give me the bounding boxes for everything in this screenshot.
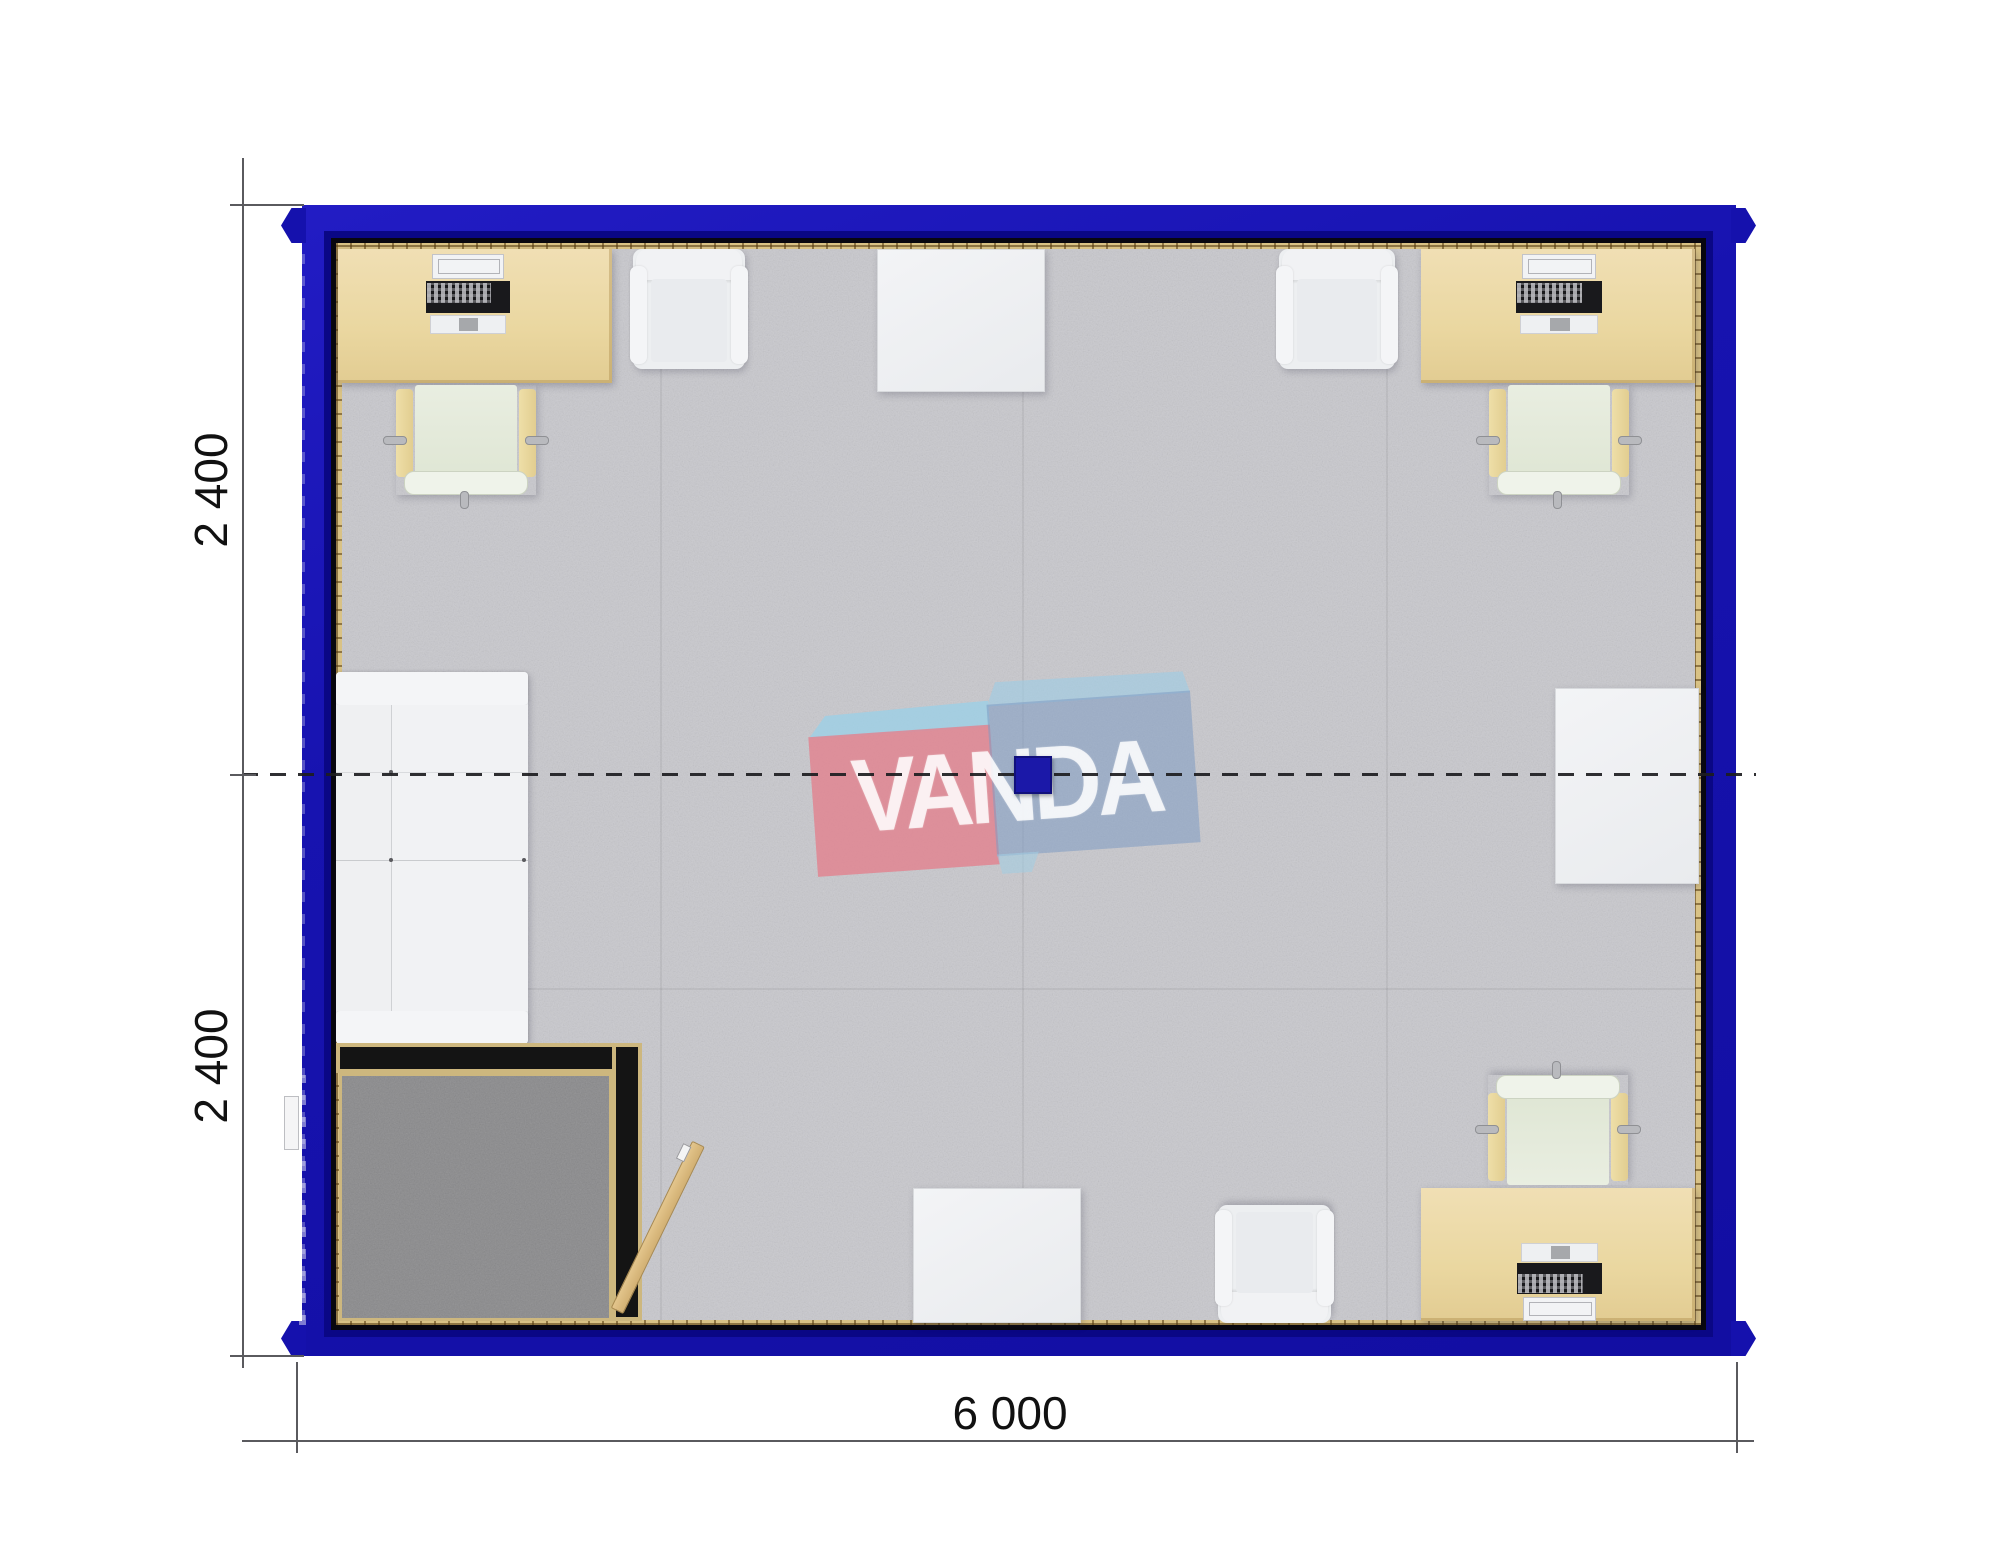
- carpet-seam: [342, 988, 1695, 990]
- chair-caster: [1618, 436, 1642, 445]
- armchair-seat: [1297, 279, 1377, 362]
- corner-casting: [281, 208, 306, 243]
- table-top-center: [877, 249, 1045, 392]
- dimension-tick: [230, 1355, 304, 1357]
- office-chair-top-left: [396, 385, 536, 495]
- laptop-keyboard: [426, 281, 510, 313]
- dimension-tick: [1736, 1429, 1738, 1453]
- armchair-bottom: [1218, 1205, 1331, 1323]
- armchair-backrest: [636, 249, 741, 280]
- dimension-tick: [230, 204, 304, 206]
- carpet-seam: [1386, 249, 1388, 1320]
- chair-seat: [1507, 1092, 1609, 1186]
- vanda-watermark: VANDA: [794, 672, 1207, 894]
- laptop-keyboard: [1516, 281, 1602, 313]
- sofa-backrest: [336, 705, 392, 1011]
- table-bottom-center: [913, 1188, 1081, 1323]
- laptop-touchpad: [459, 318, 478, 331]
- corner-casting: [281, 1321, 306, 1356]
- dimension-label-width: 6 000: [900, 1388, 1120, 1438]
- laptop-lid: [432, 254, 504, 279]
- dimension-line-bottom: [242, 1440, 1754, 1442]
- floor-plan-canvas: VANDA: [0, 0, 2000, 1561]
- laptop-touchpad: [1550, 318, 1570, 331]
- vestibule-floor: [339, 1073, 612, 1321]
- armchair-seat: [651, 279, 727, 362]
- laptop-top-right: [1516, 254, 1602, 334]
- vestibule-wall-top: [336, 1043, 642, 1073]
- laptop-palmrest: [1521, 1243, 1598, 1262]
- corner-casting: [1731, 208, 1756, 243]
- entry-door-dashes: [299, 1075, 306, 1325]
- office-chair-top-right: [1489, 385, 1629, 495]
- chair-caster: [1475, 1125, 1499, 1134]
- chair-caster: [1617, 1125, 1641, 1134]
- dimension-line-left: [242, 158, 244, 1368]
- laptop-top-left: [426, 254, 510, 334]
- laptop-keyboard: [1517, 1263, 1602, 1294]
- corner-casting: [1731, 1321, 1756, 1356]
- office-chair-bottom-right: [1488, 1075, 1628, 1185]
- sofa-seats: [392, 705, 528, 1011]
- laptop-touchpad: [1551, 1246, 1570, 1258]
- chair-caster: [1476, 436, 1500, 445]
- chair-seat: [415, 385, 517, 479]
- armchair-backrest: [1221, 1292, 1327, 1323]
- armchair-seat: [1236, 1212, 1313, 1293]
- dimension-tick: [230, 774, 256, 776]
- dimension-tick: [296, 1429, 298, 1453]
- vestibule-carpet-noise: [342, 1076, 609, 1318]
- chair-caster: [383, 436, 407, 445]
- chair-caster: [525, 436, 549, 445]
- armchair-top-left: [633, 249, 745, 369]
- laptop-bottom-right: [1517, 1243, 1602, 1321]
- sofa-armrest-bottom: [336, 1011, 528, 1044]
- chair-caster: [460, 491, 469, 509]
- sofa: [336, 672, 528, 1044]
- sofa-armrest-top: [336, 672, 528, 705]
- chair-caster: [1553, 491, 1562, 509]
- logo-text: VANDA: [848, 717, 1164, 857]
- module-centerline: [242, 773, 1756, 776]
- table-right-wall: [1555, 688, 1699, 884]
- armchair-backrest: [1282, 249, 1391, 280]
- carpet-seam: [660, 249, 662, 1320]
- exterior-door-step: [284, 1096, 299, 1150]
- center-floor-box: [1014, 756, 1052, 794]
- dimension-label-module-bottom: 2 400: [186, 996, 236, 1136]
- logo-blue-tab: [997, 851, 1040, 874]
- laptop-palmrest: [1520, 315, 1597, 334]
- dimension-label-module-top: 2 400: [186, 420, 236, 560]
- chair-seat: [1508, 385, 1610, 479]
- laptop-lid: [1523, 1297, 1596, 1321]
- laptop-lid: [1522, 254, 1596, 279]
- chair-caster: [1552, 1061, 1561, 1079]
- laptop-palmrest: [430, 315, 506, 334]
- armchair-top-right: [1279, 249, 1395, 369]
